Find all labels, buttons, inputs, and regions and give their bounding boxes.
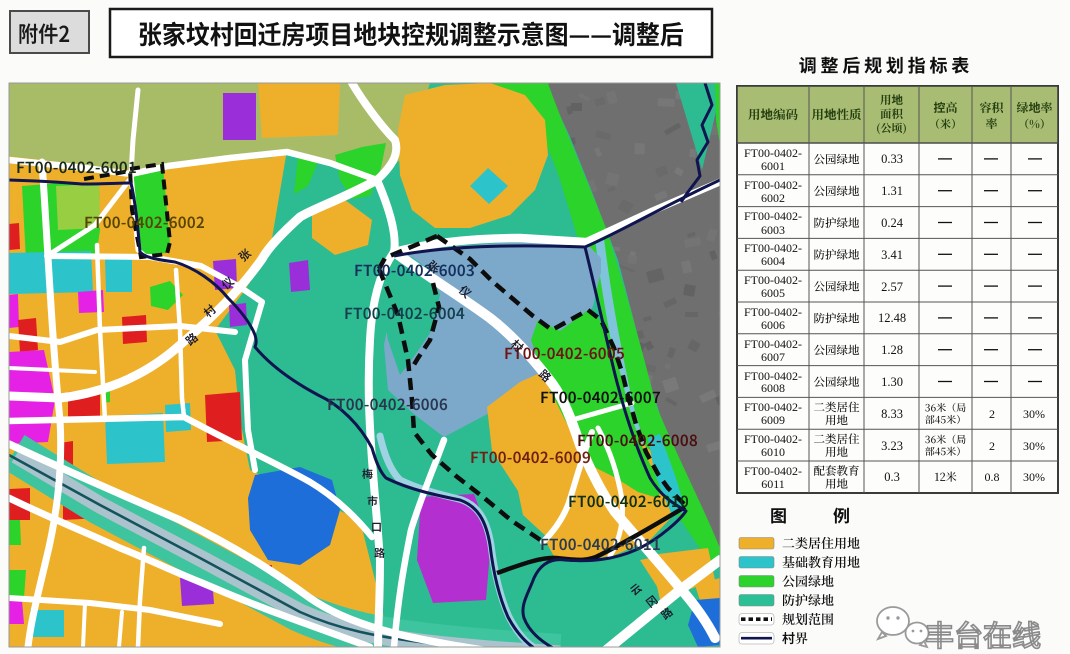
svg-text:FT00-0402-: FT00-0402- xyxy=(744,209,802,223)
svg-text:6002: 6002 xyxy=(761,191,785,205)
svg-text:2: 2 xyxy=(989,407,995,421)
svg-text:6010: 6010 xyxy=(761,445,785,459)
svg-text:30%: 30% xyxy=(1023,407,1045,421)
svg-text:6005: 6005 xyxy=(761,286,785,300)
svg-text:3.41: 3.41 xyxy=(881,248,903,262)
svg-text:6008: 6008 xyxy=(761,381,785,395)
svg-text:2.57: 2.57 xyxy=(881,280,903,294)
svg-text:6009: 6009 xyxy=(761,413,785,427)
svg-text:6004: 6004 xyxy=(761,254,785,268)
svg-text:2: 2 xyxy=(989,439,995,453)
svg-text:FT00-0402-: FT00-0402- xyxy=(744,400,802,414)
svg-text:1.30: 1.30 xyxy=(881,375,903,389)
svg-text:FT00-0402-: FT00-0402- xyxy=(744,337,802,351)
svg-text:FT00-0402-: FT00-0402- xyxy=(744,146,802,160)
svg-text:6001: 6001 xyxy=(761,159,785,173)
svg-text:6011: 6011 xyxy=(761,477,785,491)
svg-text:12.48: 12.48 xyxy=(878,311,906,325)
svg-text:1.31: 1.31 xyxy=(881,184,903,198)
svg-text:FT00-0402-: FT00-0402- xyxy=(744,305,802,319)
svg-text:3.23: 3.23 xyxy=(881,439,903,453)
svg-text:30%: 30% xyxy=(1023,470,1045,484)
svg-text:FT00-0402-: FT00-0402- xyxy=(744,178,802,192)
svg-text:0.24: 0.24 xyxy=(881,216,904,230)
svg-text:FT00-0402-: FT00-0402- xyxy=(744,432,802,446)
svg-text:6007: 6007 xyxy=(761,350,785,364)
svg-text:30%: 30% xyxy=(1023,439,1045,453)
svg-text:0.8: 0.8 xyxy=(985,470,1000,484)
svg-text:6006: 6006 xyxy=(761,318,785,332)
svg-text:6003: 6003 xyxy=(761,223,785,237)
svg-text:0.33: 0.33 xyxy=(881,152,903,166)
svg-text:FT00-0402-: FT00-0402- xyxy=(744,273,802,287)
svg-text:FT00-0402-: FT00-0402- xyxy=(744,241,802,255)
svg-text:1.28: 1.28 xyxy=(881,343,903,357)
svg-text:8.33: 8.33 xyxy=(881,407,903,421)
svg-text:FT00-0402-: FT00-0402- xyxy=(744,464,802,478)
svg-text:0.3: 0.3 xyxy=(884,470,900,484)
